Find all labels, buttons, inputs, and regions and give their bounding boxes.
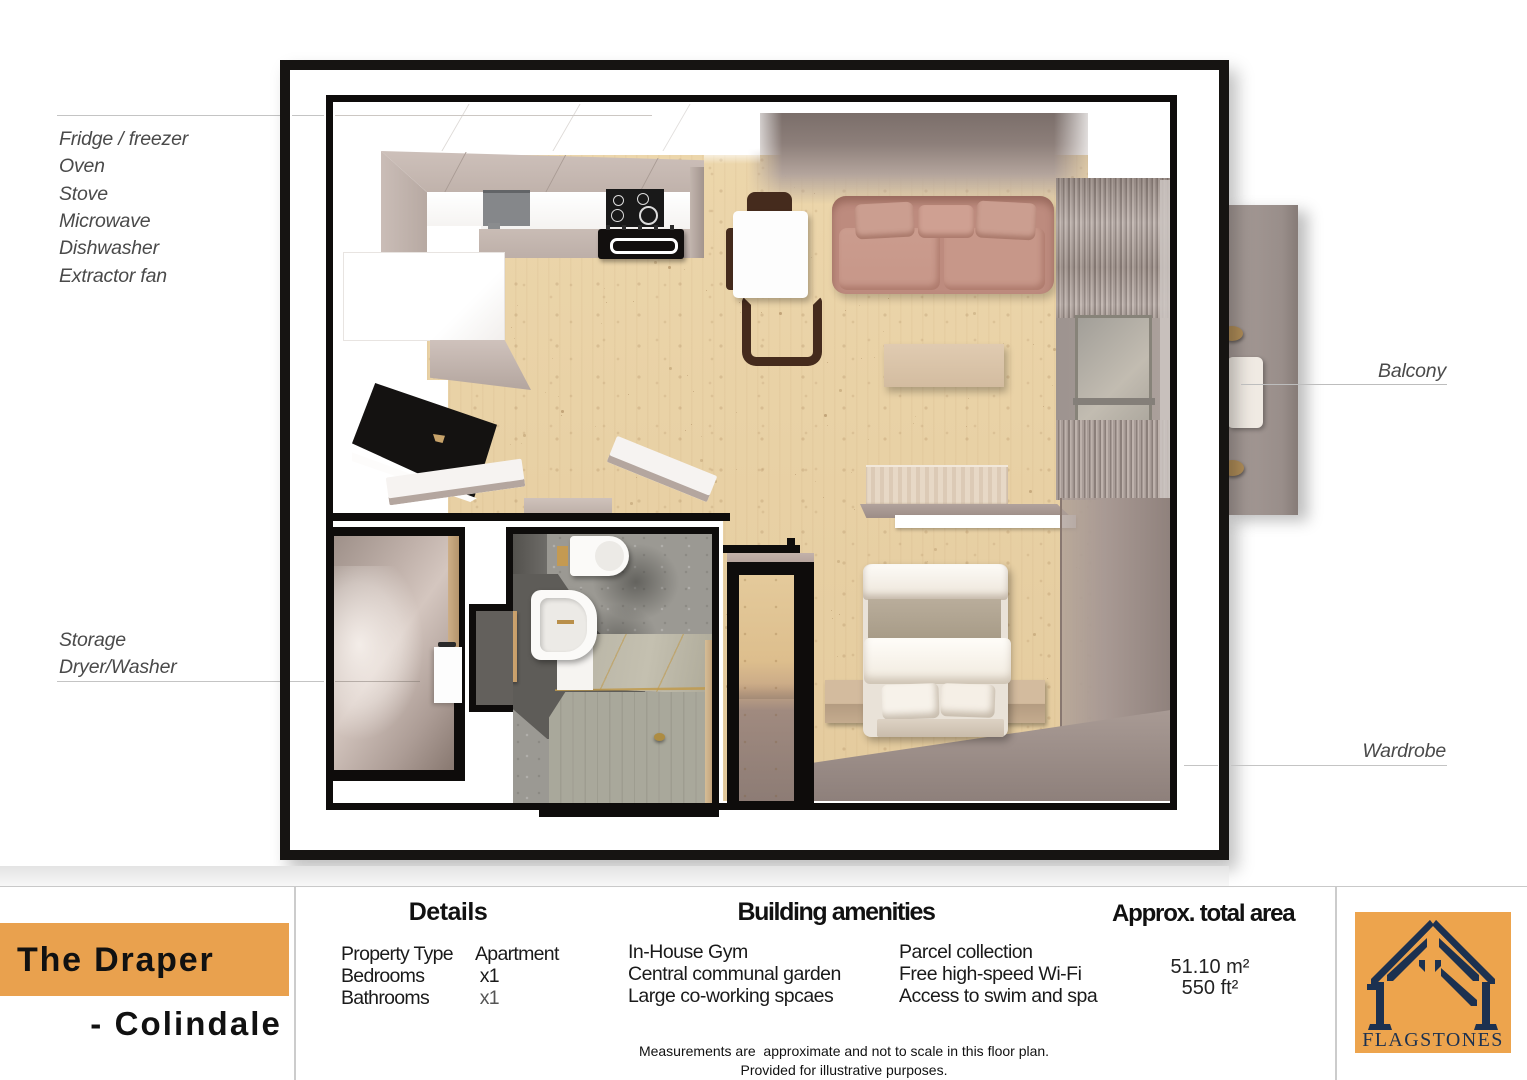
svg-text:FLAGSTONES: FLAGSTONES (1362, 1029, 1503, 1051)
